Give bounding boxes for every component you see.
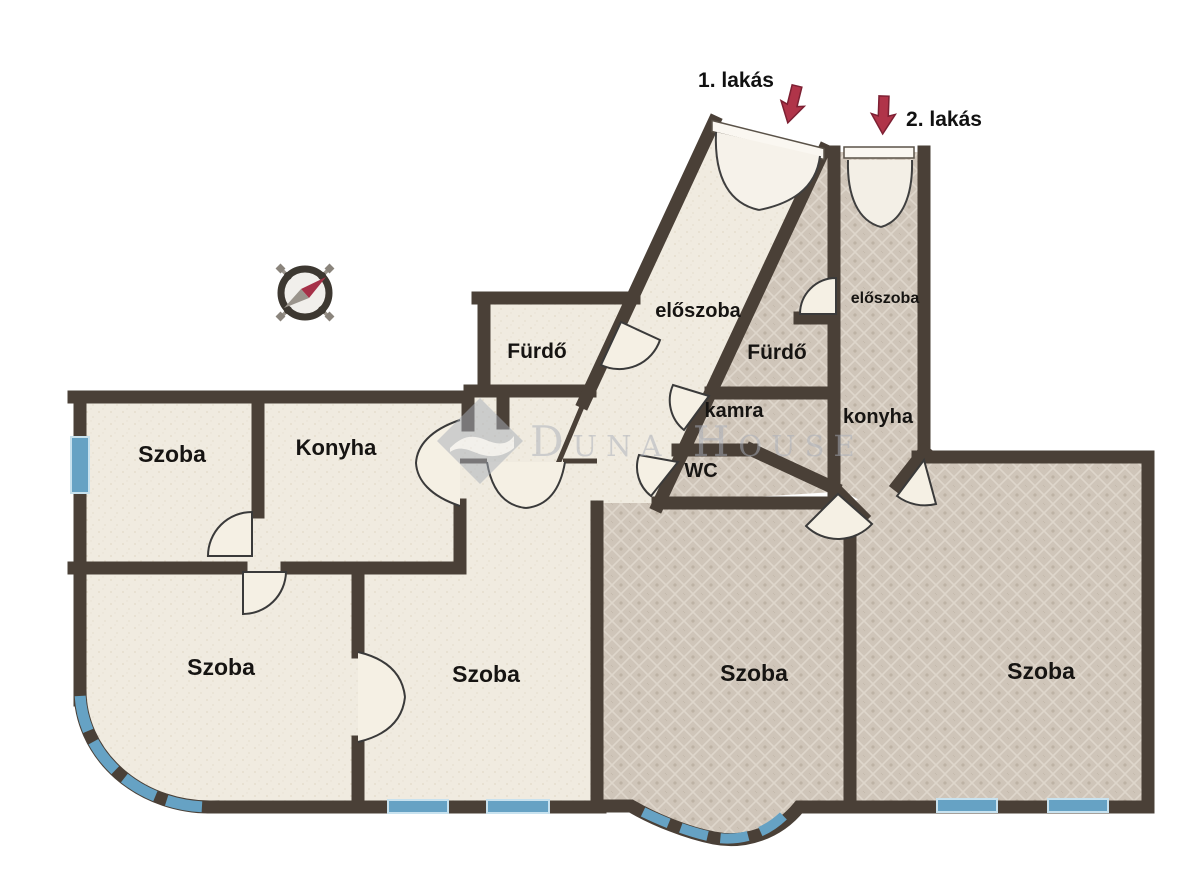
label-szoba-bottom-left: Szoba: [187, 654, 255, 680]
brand-watermark-text: Duna House: [530, 417, 864, 466]
label-furdo1: Fürdő: [507, 340, 566, 363]
floor-plan: Duna House 1. lakás 2. lakás Szoba Konyh…: [0, 0, 1200, 893]
apartment1-tag: 1. lakás: [698, 69, 774, 92]
label-szoba-bottom-middle: Szoba: [452, 661, 520, 687]
window: [388, 800, 448, 813]
label-eloszoba2: előszoba: [851, 290, 920, 307]
window: [937, 799, 997, 812]
label-kamra: kamra: [705, 400, 765, 422]
label-eloszoba1: előszoba: [655, 300, 741, 322]
window: [1048, 799, 1108, 812]
label-konyha1: Konyha: [296, 435, 377, 460]
window: [71, 437, 89, 493]
label-konyha2: konyha: [843, 406, 914, 428]
label-szoba-middle: Szoba: [720, 660, 788, 686]
compass-icon: [276, 264, 335, 322]
floor-plan-page: Duna House 1. lakás 2. lakás Szoba Konyh…: [0, 0, 1200, 893]
floor-szoba-right: [850, 457, 1148, 807]
entrance-arrow-1: [776, 83, 808, 126]
apartment2-tag: 2. lakás: [906, 108, 982, 131]
label-szoba-right: Szoba: [1007, 658, 1075, 684]
label-szoba-top-left: Szoba: [138, 441, 206, 467]
label-furdo2: Fürdő: [747, 341, 806, 364]
entrance-arrow-2: [871, 96, 896, 135]
label-wc: WC: [684, 460, 717, 482]
window: [487, 800, 549, 813]
